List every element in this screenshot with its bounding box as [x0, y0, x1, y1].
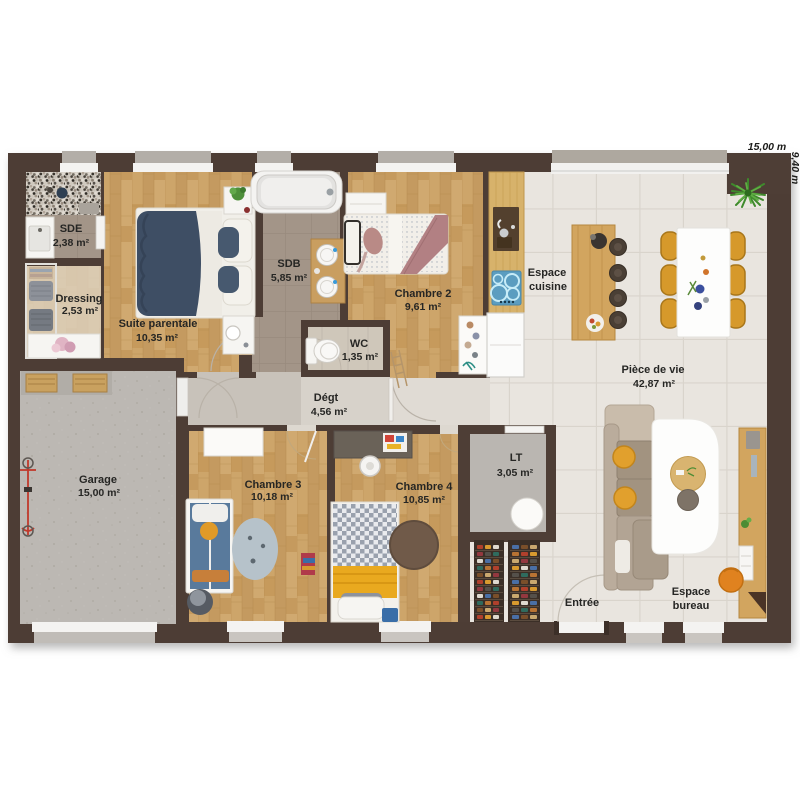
svg-text:Chambre 3: Chambre 3: [245, 479, 302, 491]
svg-text:SDE: SDE: [60, 223, 83, 235]
svg-text:Entrée: Entrée: [565, 597, 599, 609]
svg-text:Dressing: Dressing: [55, 293, 102, 305]
svg-text:WC: WC: [350, 338, 368, 350]
svg-text:9,40 m: 9,40 m: [789, 152, 800, 185]
svg-text:3,05 m²: 3,05 m²: [497, 467, 534, 479]
svg-text:4,56 m²: 4,56 m²: [311, 406, 348, 418]
svg-text:Garage: Garage: [79, 474, 117, 486]
svg-text:Suite parentale: Suite parentale: [119, 318, 198, 330]
svg-text:15,00 m: 15,00 m: [748, 141, 787, 153]
svg-text:10,18 m²: 10,18 m²: [251, 491, 294, 503]
svg-text:10,85 m²: 10,85 m²: [403, 494, 446, 506]
svg-text:2,38 m²: 2,38 m²: [53, 237, 90, 249]
svg-text:2,53 m²: 2,53 m²: [62, 305, 99, 317]
svg-text:cuisine: cuisine: [529, 281, 567, 293]
svg-text:42,87 m²: 42,87 m²: [633, 378, 676, 390]
svg-text:Chambre 4: Chambre 4: [396, 481, 454, 493]
svg-text:Espace: Espace: [672, 586, 711, 598]
svg-text:Chambre 2: Chambre 2: [395, 288, 452, 300]
svg-text:10,35 m²: 10,35 m²: [136, 332, 179, 344]
svg-text:bureau: bureau: [673, 600, 710, 612]
svg-text:SDB: SDB: [277, 258, 300, 270]
svg-text:1,35 m²: 1,35 m²: [342, 351, 379, 363]
svg-text:Dégt: Dégt: [314, 392, 339, 404]
svg-text:LT: LT: [510, 452, 523, 464]
svg-text:5,85 m²: 5,85 m²: [271, 272, 308, 284]
svg-text:15,00 m²: 15,00 m²: [78, 487, 121, 499]
svg-text:Espace: Espace: [528, 267, 567, 279]
svg-text:9,61 m²: 9,61 m²: [405, 301, 442, 313]
svg-text:Pièce de vie: Pièce de vie: [622, 364, 685, 376]
